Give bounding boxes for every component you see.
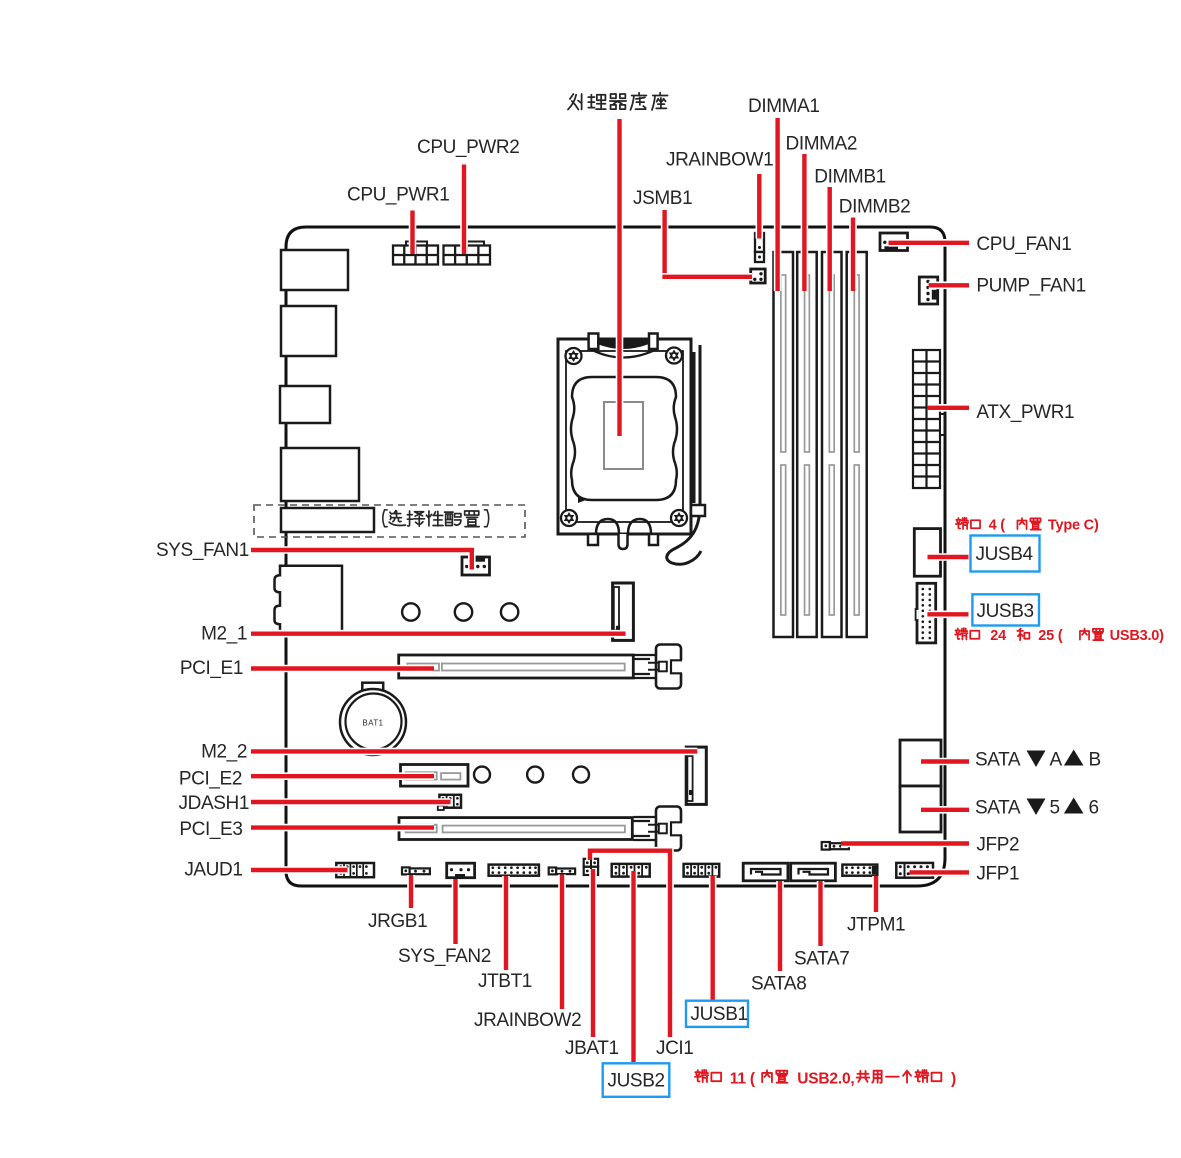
svg-text:JSMB1: JSMB1 <box>633 188 692 209</box>
svg-text:JUSB1: JUSB1 <box>691 1004 748 1025</box>
svg-text:JDASH1: JDASH1 <box>179 793 249 814</box>
svg-text:JRAINBOW1: JRAINBOW1 <box>666 150 773 171</box>
svg-text:JRGB1: JRGB1 <box>368 911 427 932</box>
svg-text:PCI_E1: PCI_E1 <box>180 658 243 679</box>
svg-text:SYS_FAN2: SYS_FAN2 <box>398 946 491 967</box>
svg-text:A: A <box>1050 750 1063 771</box>
svg-text:5: 5 <box>1050 798 1060 819</box>
svg-text:6: 6 <box>1089 798 1099 819</box>
svg-text:PUMP_FAN1: PUMP_FAN1 <box>976 276 1085 297</box>
svg-text:25 (: 25 ( <box>1038 628 1063 644</box>
svg-text:SATA: SATA <box>975 750 1021 771</box>
svg-text:JUSB3: JUSB3 <box>977 601 1034 622</box>
svg-text:JUSB4: JUSB4 <box>976 544 1034 565</box>
svg-text:JUSB2: JUSB2 <box>608 1071 665 1092</box>
svg-text:USB2.0,: USB2.0, <box>797 1071 854 1088</box>
svg-text:CPU_FAN1: CPU_FAN1 <box>976 234 1071 255</box>
svg-text:JBAT1: JBAT1 <box>565 1038 619 1059</box>
svg-text:JFP1: JFP1 <box>976 864 1019 885</box>
svg-text:JTBT1: JTBT1 <box>478 971 532 992</box>
svg-text:): ) <box>951 1071 956 1088</box>
svg-text:USB3.0): USB3.0) <box>1110 628 1165 644</box>
svg-text:PCI_E2: PCI_E2 <box>179 769 242 790</box>
svg-text:BAT1: BAT1 <box>363 719 384 728</box>
svg-text:ATX_PWR1: ATX_PWR1 <box>976 402 1074 423</box>
svg-text:SATA7: SATA7 <box>794 949 849 970</box>
svg-text:CPU_PWR1: CPU_PWR1 <box>347 185 449 206</box>
svg-text:DIMMA1: DIMMA1 <box>748 96 820 117</box>
svg-text:4 (: 4 ( <box>989 518 1006 534</box>
svg-text:DIMMB1: DIMMB1 <box>814 167 886 188</box>
svg-text:JCI1: JCI1 <box>656 1038 693 1059</box>
svg-text:B: B <box>1089 750 1101 771</box>
svg-text:M2_2: M2_2 <box>201 742 247 763</box>
svg-text:CPU_PWR2: CPU_PWR2 <box>417 137 519 158</box>
svg-text:SATA: SATA <box>975 798 1021 819</box>
svg-text:M2_1: M2_1 <box>201 624 247 645</box>
svg-text:JRAINBOW2: JRAINBOW2 <box>474 1010 581 1031</box>
svg-text:DIMMB2: DIMMB2 <box>839 197 911 218</box>
svg-text:SYS_FAN1: SYS_FAN1 <box>156 540 249 561</box>
svg-text:Type C): Type C) <box>1048 518 1099 534</box>
svg-text:JTPM1: JTPM1 <box>847 915 905 936</box>
svg-text:DIMMA2: DIMMA2 <box>786 134 858 155</box>
svg-text:24: 24 <box>990 628 1006 644</box>
svg-text:SATA8: SATA8 <box>751 974 806 995</box>
svg-text:JFP2: JFP2 <box>976 835 1019 856</box>
svg-text:PCI_E3: PCI_E3 <box>179 819 242 840</box>
svg-text:11 (: 11 ( <box>730 1071 756 1088</box>
svg-text:JAUD1: JAUD1 <box>184 859 242 880</box>
